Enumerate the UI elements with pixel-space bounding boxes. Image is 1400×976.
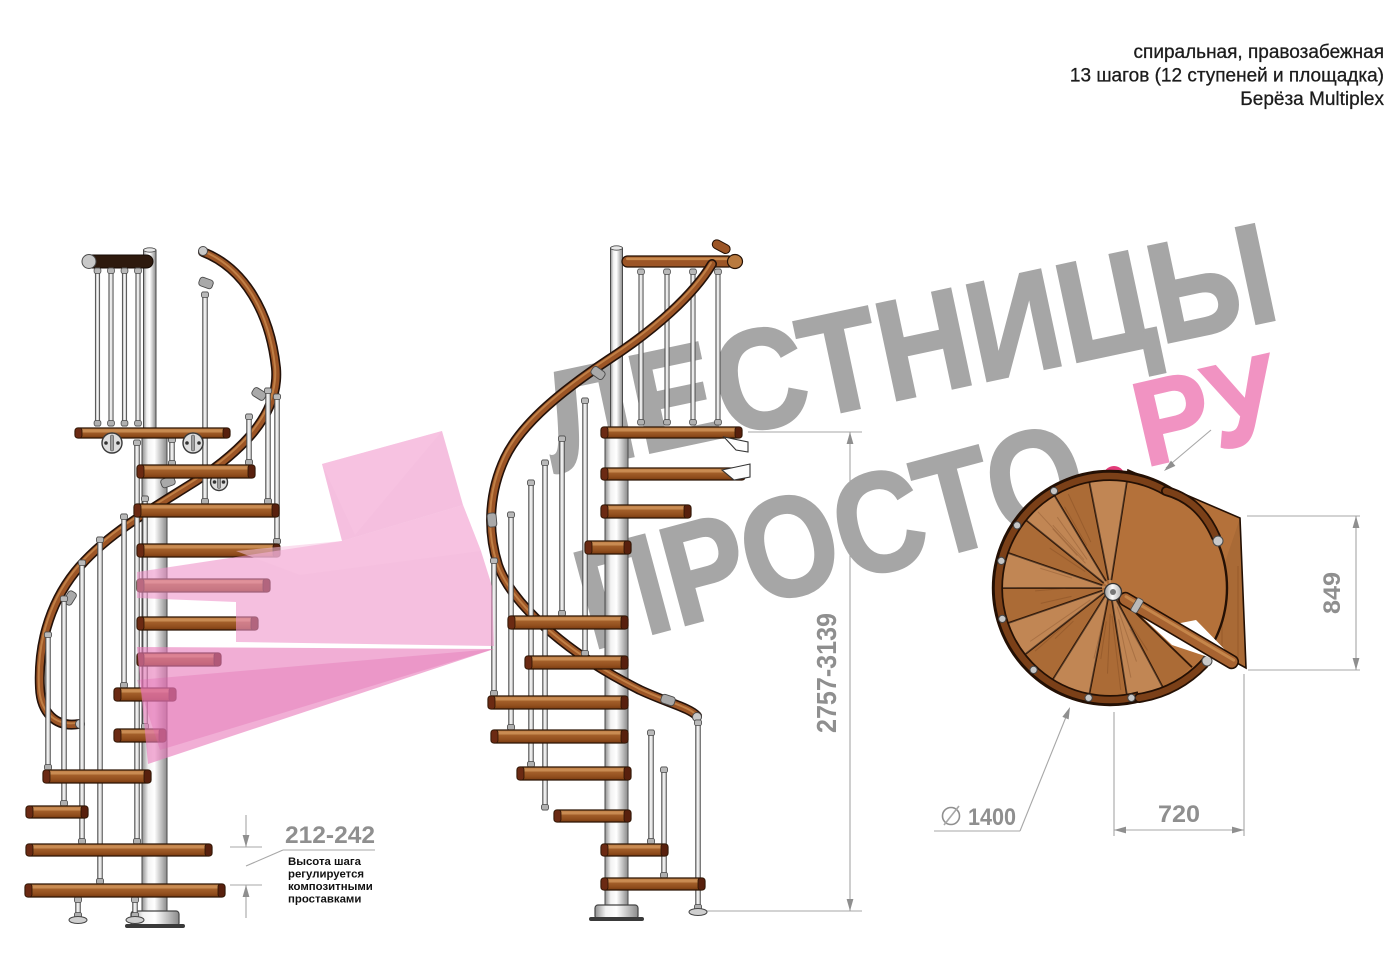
svg-text:212-242: 212-242 bbox=[285, 822, 375, 849]
svg-text:Берёза Multiplex: Берёза Multiplex bbox=[1240, 89, 1384, 110]
svg-text:Высота шага: Высота шага bbox=[288, 856, 362, 868]
svg-text:2757-3139: 2757-3139 bbox=[811, 613, 842, 733]
svg-text:720: 720 bbox=[1158, 801, 1200, 828]
svg-text:спиральная, правозабежная: спиральная, правозабежная bbox=[1134, 42, 1384, 63]
svg-text:13 шагов (12 ступеней и площад: 13 шагов (12 ступеней и площадка) bbox=[1070, 66, 1384, 87]
svg-text:композитными: композитными bbox=[288, 881, 373, 893]
svg-text:1400: 1400 bbox=[968, 804, 1016, 831]
svg-text:849: 849 bbox=[1319, 572, 1346, 614]
svg-text:проставками: проставками bbox=[288, 894, 361, 906]
svg-text:регулируется: регулируется bbox=[288, 869, 364, 881]
